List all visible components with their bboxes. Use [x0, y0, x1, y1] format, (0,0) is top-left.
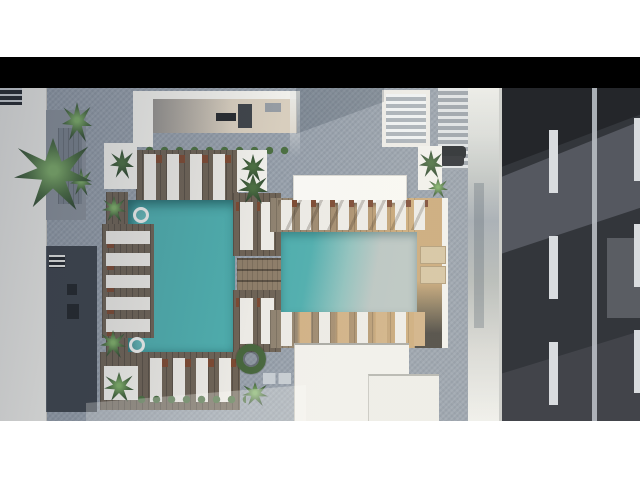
- rooftop-unit: [440, 156, 464, 166]
- sidewalk: [468, 88, 499, 421]
- tan-lounger: [420, 246, 446, 264]
- pool-bridge: [237, 258, 281, 290]
- lower-building-roof: [368, 374, 439, 421]
- outdoor-kitchen-patio: [153, 99, 297, 133]
- page: { "page": { "kind": "architectural aeria…: [0, 0, 640, 480]
- aerial-render: [0, 88, 640, 421]
- patio-chairs: [263, 373, 291, 384]
- parapet-walkway: [133, 91, 153, 147]
- letterbox-black-bar: [0, 57, 640, 88]
- charcoal-building: [46, 246, 97, 412]
- roof-hatch: [67, 304, 79, 319]
- pool-float-ring: [129, 337, 145, 353]
- asphalt-road: [499, 88, 640, 421]
- kitchen-island: [238, 104, 252, 128]
- left-roof-louver: [0, 88, 22, 105]
- pool-float-ring: [133, 207, 149, 223]
- lane-dash-markings: [549, 130, 558, 410]
- right-pool-water: [281, 232, 417, 312]
- wall-shadow: [474, 183, 484, 328]
- kitchen-counter: [216, 113, 236, 121]
- roof-hatch: [67, 284, 77, 295]
- road-curb: [499, 88, 502, 421]
- lounger-row-bottom: [278, 312, 428, 346]
- lounger-row-jetty: [106, 227, 150, 336]
- bottom-white-band: [0, 421, 640, 480]
- tan-lounger: [420, 266, 446, 284]
- ring-topiary: [236, 344, 266, 374]
- lounger-row-top: [140, 154, 236, 200]
- left-building-roof: [0, 88, 47, 421]
- top-white-band: [0, 0, 640, 57]
- cabana-roof: [294, 176, 406, 202]
- lounger-row-top: [278, 200, 428, 230]
- louvered-roof-building: [382, 90, 430, 147]
- lane-dash-markings: [634, 118, 640, 408]
- patio-table: [265, 103, 281, 112]
- parapet-walkway: [133, 91, 297, 99]
- vent-grille: [49, 255, 65, 268]
- lane-divider-line: [592, 88, 597, 421]
